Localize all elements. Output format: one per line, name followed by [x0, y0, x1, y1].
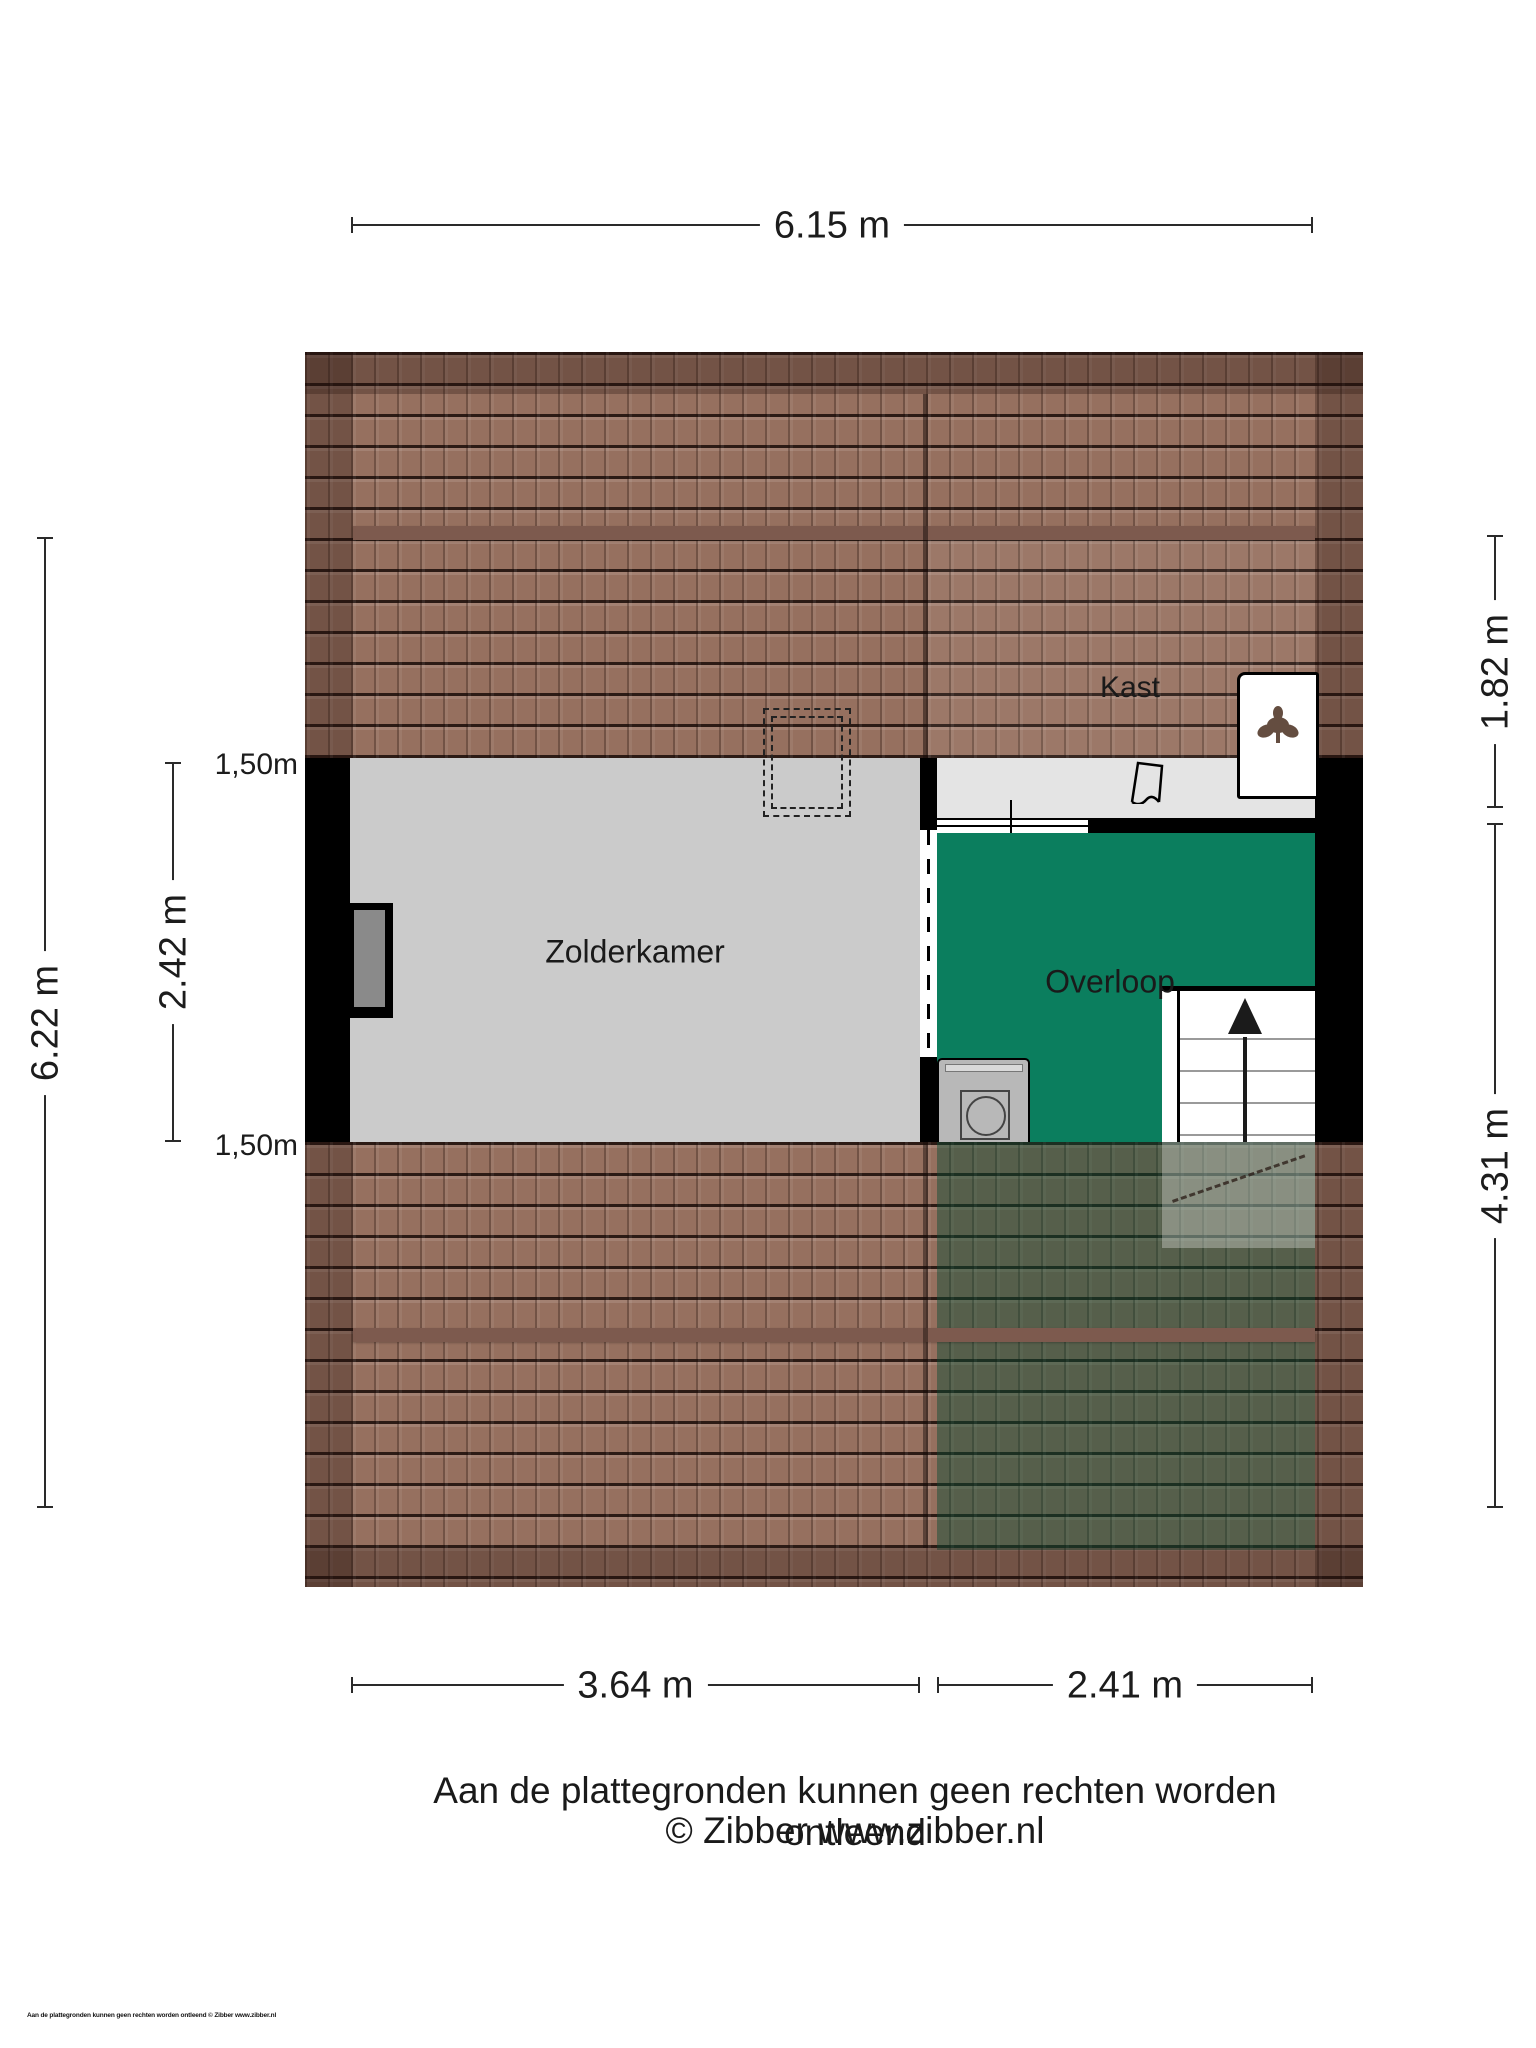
stairs-under-roof — [1162, 1142, 1315, 1248]
dimension-bottom-left: 3.64 m — [351, 1684, 920, 1686]
plant-icon — [1252, 705, 1304, 749]
wall-left — [305, 758, 350, 1142]
wall-divider-upper — [920, 758, 937, 830]
opening-dash-line — [927, 830, 930, 1057]
roof-bottom-eave — [305, 1548, 1363, 1587]
wall-right — [1315, 758, 1363, 1142]
stairs — [1162, 986, 1315, 1147]
washer-panel — [945, 1064, 1023, 1072]
label-zolderkamer: Zolderkamer — [545, 934, 725, 971]
arrow-up-icon — [1228, 998, 1262, 1034]
roof-bottom-ridge — [353, 1328, 1315, 1342]
dimension-right-bottom-label: 4.31 m — [1473, 1093, 1520, 1237]
washer-drum-circle — [966, 1096, 1006, 1136]
label-overloop: Overloop — [1045, 964, 1175, 1001]
window-frame — [350, 903, 393, 1018]
skylight-inner — [771, 716, 843, 809]
dimension-left-inner: 2.42 m — [172, 762, 174, 1142]
credit-text: © Zibber www.zibber.nl — [410, 1810, 1300, 1852]
roof-left-edge — [305, 352, 353, 758]
wall-divider-lower — [920, 1057, 937, 1142]
dimension-top-label: 6.15 m — [760, 203, 904, 250]
washing-machine-icon — [937, 1058, 1030, 1142]
roof-bottom-right-edge — [1315, 1142, 1363, 1587]
floorplan-page: { "plan_title": "Attic floor plan (Zibbe… — [0, 0, 1536, 2048]
roof-bottom-left-edge — [305, 1142, 353, 1587]
stair-tread — [1180, 1102, 1315, 1104]
dimension-left-outer-label: 6.22 m — [23, 950, 70, 1094]
sliding-door-mid-line — [937, 825, 1088, 827]
label-kast: Kast — [1100, 671, 1160, 705]
height-marker-bottom: 1,50m — [186, 1129, 298, 1163]
stairs-arrow-shaft — [1243, 1037, 1247, 1147]
wall-kast-bottom — [1088, 818, 1272, 833]
stair-tread — [1180, 1070, 1315, 1072]
floorplan: Zolderkamer Overloop Kast — [305, 352, 1363, 1587]
dimension-right-top: 1.82 m — [1494, 535, 1496, 808]
window-glass — [354, 910, 385, 1007]
roof-top-seam — [923, 394, 928, 758]
roof-right-edge — [1315, 352, 1363, 758]
roof-top-eave — [305, 352, 1363, 394]
height-marker-top: 1,50m — [186, 748, 298, 782]
wardrobe — [1237, 672, 1319, 799]
dimension-left-outer: 6.22 m — [44, 537, 46, 1508]
stairs-left-line — [1177, 991, 1180, 1142]
dimension-left-inner-label: 2.42 m — [151, 880, 198, 1024]
dimension-top: 6.15 m — [351, 224, 1313, 226]
stair-tread — [1180, 1134, 1315, 1136]
roof-top-ridge — [353, 526, 1315, 540]
dimension-bottom-right: 2.41 m — [937, 1684, 1313, 1686]
dimension-right-top-label: 1.82 m — [1473, 599, 1520, 743]
dimension-right-bottom: 4.31 m — [1494, 823, 1496, 1508]
door-swing-icon — [1128, 760, 1168, 804]
skylight-outline — [763, 708, 851, 817]
stairs-cut-line — [1172, 1154, 1305, 1202]
dimension-bottom-right-label: 2.41 m — [1053, 1663, 1197, 1710]
opening-dashed — [920, 830, 937, 1057]
stair-tread — [1180, 1038, 1315, 1040]
micro-footer-text: Aan de plattegronden kunnen geen rechten… — [27, 2012, 276, 2019]
dimension-bottom-left-label: 3.64 m — [563, 1663, 707, 1710]
washer-drum-box — [960, 1090, 1010, 1140]
roof-bottom-seam — [923, 1142, 928, 1548]
